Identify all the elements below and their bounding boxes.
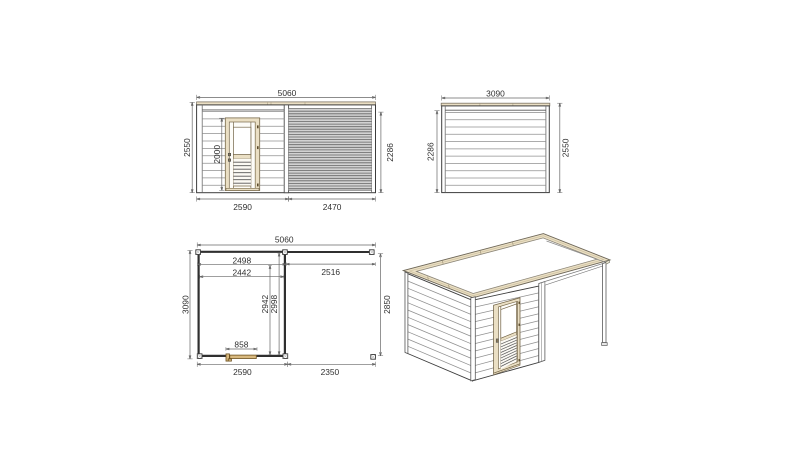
- svg-text:2442: 2442: [232, 267, 251, 277]
- svg-text:2000: 2000: [212, 145, 222, 164]
- svg-text:3090: 3090: [486, 89, 505, 99]
- svg-text:2850: 2850: [382, 295, 392, 314]
- svg-text:2350: 2350: [321, 367, 340, 377]
- svg-text:2286: 2286: [385, 143, 395, 162]
- svg-text:2498: 2498: [232, 255, 251, 265]
- svg-text:5060: 5060: [275, 234, 294, 244]
- svg-text:2590: 2590: [233, 202, 252, 212]
- svg-text:2470: 2470: [323, 202, 342, 212]
- svg-text:2590: 2590: [233, 367, 252, 377]
- svg-text:2998: 2998: [269, 294, 279, 313]
- svg-text:2550: 2550: [561, 138, 571, 157]
- svg-text:2516: 2516: [321, 267, 340, 277]
- svg-text:3090: 3090: [180, 295, 190, 314]
- svg-text:5060: 5060: [278, 88, 297, 98]
- svg-text:2286: 2286: [426, 142, 436, 161]
- svg-text:858: 858: [234, 339, 248, 349]
- svg-text:2550: 2550: [182, 138, 192, 157]
